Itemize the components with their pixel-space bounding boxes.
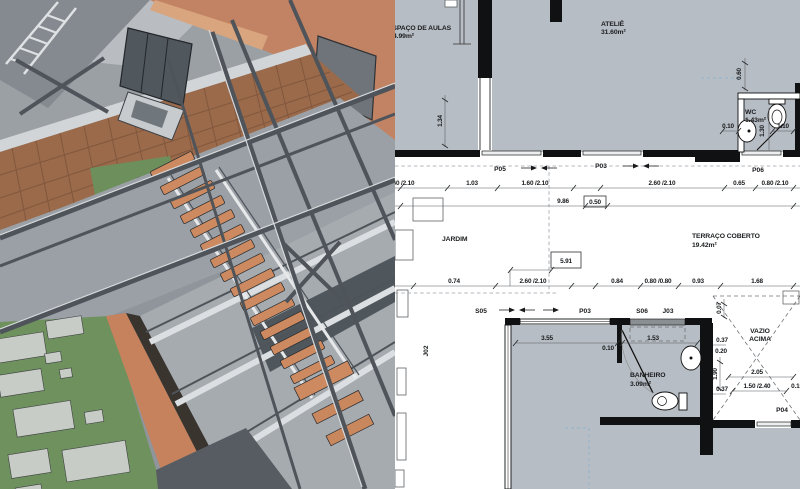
dim-label: 1.30 <box>759 124 766 136</box>
dim-label: 2.60 /2.10 <box>649 180 677 187</box>
room-label-banheiro: BANHEIRO <box>630 372 665 379</box>
paver <box>59 368 72 379</box>
dim-label: 1.60 /2.10 <box>522 180 550 187</box>
planter-box <box>413 198 443 221</box>
dim-label: 1.90 <box>712 367 719 379</box>
banheiro-sink <box>681 346 701 370</box>
door-tag-p04: P04 <box>776 407 788 414</box>
dim-label: 1.50 /2.40 <box>744 383 772 390</box>
room-area-atelie: 31.60m² <box>601 29 626 36</box>
toilet-tank <box>679 393 687 410</box>
column-stub <box>445 0 457 7</box>
wall-lower-top <box>505 318 520 325</box>
dim-label: 1.10 <box>777 123 789 130</box>
column-top-edge <box>550 0 562 22</box>
wall-bottom-right <box>791 420 800 428</box>
wall-bottom-band <box>543 150 581 157</box>
wc-wall-top <box>738 93 800 99</box>
room-label-vazio: VAZIO <box>750 328 770 335</box>
dim-label: 0.60 <box>736 67 743 79</box>
room-label-wc: WC <box>745 109 756 116</box>
room-label-atelie: ATELIÊ <box>601 19 625 28</box>
door-tag-p03: P03 <box>595 163 607 170</box>
dim-label: 1.53 <box>647 335 659 342</box>
split-view: 0.60 /2.10 1.03 1.60 /2.10 2.60 /2.10 0.… <box>0 0 800 489</box>
room-area-terraco: 19.42m² <box>692 242 717 249</box>
dim-label: 0.80 /0.80 <box>645 278 673 285</box>
wall-thick-segment <box>695 150 740 162</box>
dim-label: 0.07 <box>716 301 723 313</box>
dim-label: 0.74 <box>448 278 460 285</box>
sink-drain <box>690 357 693 360</box>
dim-label: 2.60 /2.10 <box>520 278 548 285</box>
banheiro-toilet <box>652 392 687 410</box>
dim-label: 9.86 <box>557 198 569 205</box>
door-tag-p06: P06 <box>752 167 764 174</box>
window-tag-j03: J03 <box>662 308 673 315</box>
room-area-wc: 1.43m² <box>745 117 767 124</box>
planter-box <box>397 368 406 395</box>
dim-label: 0.50 <box>589 199 601 206</box>
window-tag-s06: S06 <box>636 308 648 315</box>
wall-room-divider <box>478 0 492 78</box>
door-p04-leaf <box>757 422 791 426</box>
window-tag-s05: S05 <box>475 308 487 315</box>
dim-label: 1.03 <box>466 180 478 187</box>
dim-label: 0.10 <box>722 123 734 130</box>
window-tag-j02: J02 <box>423 345 430 356</box>
dim-label: 3.55 <box>541 335 553 342</box>
door-p06-leaf <box>742 151 781 155</box>
door-tag-p03b: P03 <box>579 308 591 315</box>
paver <box>45 351 62 363</box>
dim-label: 5.91 <box>560 258 572 265</box>
planter-box <box>395 230 413 260</box>
planter-box <box>397 290 408 317</box>
dim-label: 0.20 <box>715 348 727 355</box>
dim-label: 0.37 <box>716 337 728 344</box>
room-label-jardim: JARDIM <box>442 236 468 243</box>
dim-label: 0.80 /2.10 <box>762 180 790 187</box>
wall-bottom-band <box>395 150 480 157</box>
room-bottom-right <box>713 428 800 489</box>
dim-label: 0.10 <box>602 345 614 352</box>
wall-vertical-mid <box>700 323 713 455</box>
door-tag-p05: P05 <box>494 166 506 173</box>
planter-box <box>397 413 406 460</box>
toilet-tank <box>769 99 785 104</box>
model-3d-view <box>0 0 395 489</box>
room-label-espaco: ESPAÇO DE AULAS <box>395 25 452 32</box>
floor-plan-view: 0.60 /2.10 1.03 1.60 /2.10 2.60 /2.10 0.… <box>395 0 800 489</box>
dim-label: 0.65 <box>733 180 745 187</box>
door-p05-leaf <box>482 151 541 155</box>
room-area-espaco: 4.99m² <box>395 33 415 40</box>
dim-label: 1.68 <box>751 278 763 285</box>
room-label-terraco: TERRAÇO COBERTO <box>692 233 760 240</box>
dim-label: 0.84 <box>611 278 623 285</box>
dim-label: 0.93 <box>692 278 704 285</box>
dim-label: 0.15 <box>791 383 800 390</box>
window-s06-bar <box>630 319 685 325</box>
sink-drain <box>748 130 751 133</box>
room-label-vazio-2: ACIMA <box>749 336 771 343</box>
room-espaco-de-aulas <box>395 0 478 152</box>
paver <box>84 410 104 425</box>
toilet-bowl <box>652 392 678 410</box>
dim-label: 1.34 <box>437 114 444 126</box>
wall-bottom-right <box>713 420 755 428</box>
room-connector <box>700 455 713 489</box>
planter-box <box>395 470 404 487</box>
wall-banheiro-bottom <box>600 417 700 425</box>
dim-label: 0.60 /2.10 <box>395 180 415 187</box>
dim-label: 2.05 <box>751 369 763 376</box>
room-area-banheiro: 3.09m² <box>630 381 652 388</box>
door-p03-leaf <box>583 151 641 155</box>
dim-label: 0.37 <box>716 386 728 393</box>
